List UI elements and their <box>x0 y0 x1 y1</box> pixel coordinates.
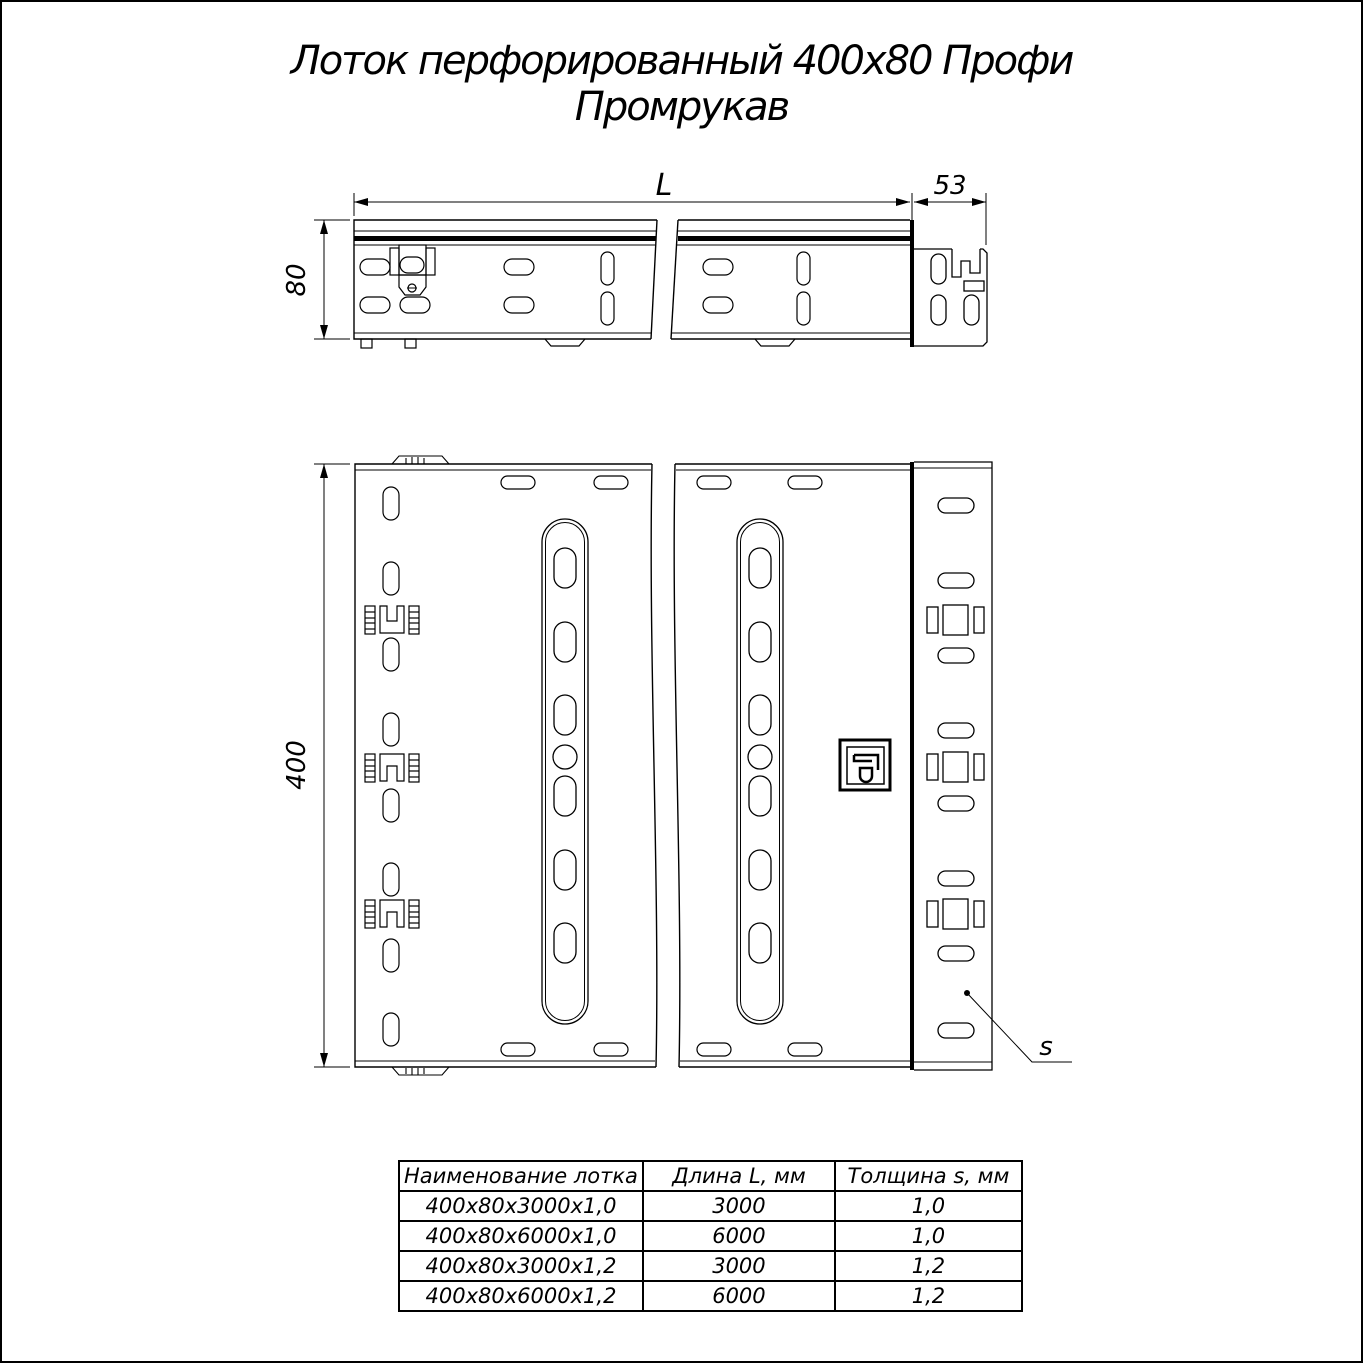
dim-label-L: L <box>656 168 673 203</box>
dimension-L: L <box>354 168 912 245</box>
plan-tabs <box>392 456 449 1075</box>
header-length: Длина L, мм <box>643 1161 835 1191</box>
bracket-cutouts <box>365 606 419 928</box>
dim-label-s: s <box>1039 1032 1053 1062</box>
cell-thickness: 1,0 <box>835 1191 1022 1221</box>
spec-table: Наименование лотка Длина L, мм Толщина s… <box>398 1160 1023 1312</box>
bottom-tabs <box>361 339 795 348</box>
cell-tray-name: 400х80х6000х1,0 <box>399 1221 643 1251</box>
connector-end-side <box>914 249 987 346</box>
break-line <box>651 464 657 1067</box>
cell-tray-name: 400х80х3000х1,0 <box>399 1191 643 1221</box>
cell-length: 6000 <box>643 1221 835 1251</box>
plan-edge-slots <box>501 476 822 1056</box>
table-row: 400х80х3000х1,2 3000 1,2 <box>399 1251 1022 1281</box>
table-row: 400х80х3000х1,0 3000 1,0 <box>399 1191 1022 1221</box>
promrukav-logo-icon <box>840 740 890 790</box>
dim-label-80: 80 <box>282 263 312 296</box>
plan-view <box>355 456 992 1075</box>
cell-thickness: 1,0 <box>835 1221 1022 1251</box>
dimension-400: 400 <box>282 464 350 1067</box>
side-perforation <box>360 252 810 325</box>
cell-tray-name: 400х80х6000х1,2 <box>399 1281 643 1311</box>
cell-length: 3000 <box>643 1191 835 1221</box>
dimension-53: 53 <box>914 171 986 245</box>
table-row: 400х80х6000х1,0 6000 1,0 <box>399 1221 1022 1251</box>
cell-tray-name: 400х80х3000х1,2 <box>399 1251 643 1281</box>
header-thickness: Толщина s, мм <box>835 1161 1022 1191</box>
table-row: 400х80х6000х1,2 6000 1,2 <box>399 1281 1022 1311</box>
break-line <box>671 220 678 339</box>
drawing-sheet: Лоток перфорированный 400х80 Профи Промр… <box>0 0 1363 1363</box>
dimension-80: 80 <box>282 220 350 339</box>
cell-length: 6000 <box>643 1281 835 1311</box>
side-view <box>354 220 987 348</box>
spec-table-header-row: Наименование лотка Длина L, мм Толщина s… <box>399 1161 1022 1191</box>
latch-detail <box>390 245 435 295</box>
dim-label-53: 53 <box>933 171 966 201</box>
dim-label-400: 400 <box>282 740 312 790</box>
cell-length: 3000 <box>643 1251 835 1281</box>
cell-thickness: 1,2 <box>835 1281 1022 1311</box>
cell-thickness: 1,2 <box>835 1251 1022 1281</box>
connector-strip-plan <box>914 462 992 1070</box>
header-tray-name: Наименование лотка <box>399 1161 643 1191</box>
break-line <box>674 464 680 1067</box>
tray-drawing: L 53 80 <box>2 2 1363 1363</box>
long-slots <box>542 519 783 1024</box>
thickness-callout: s <box>964 990 1072 1062</box>
